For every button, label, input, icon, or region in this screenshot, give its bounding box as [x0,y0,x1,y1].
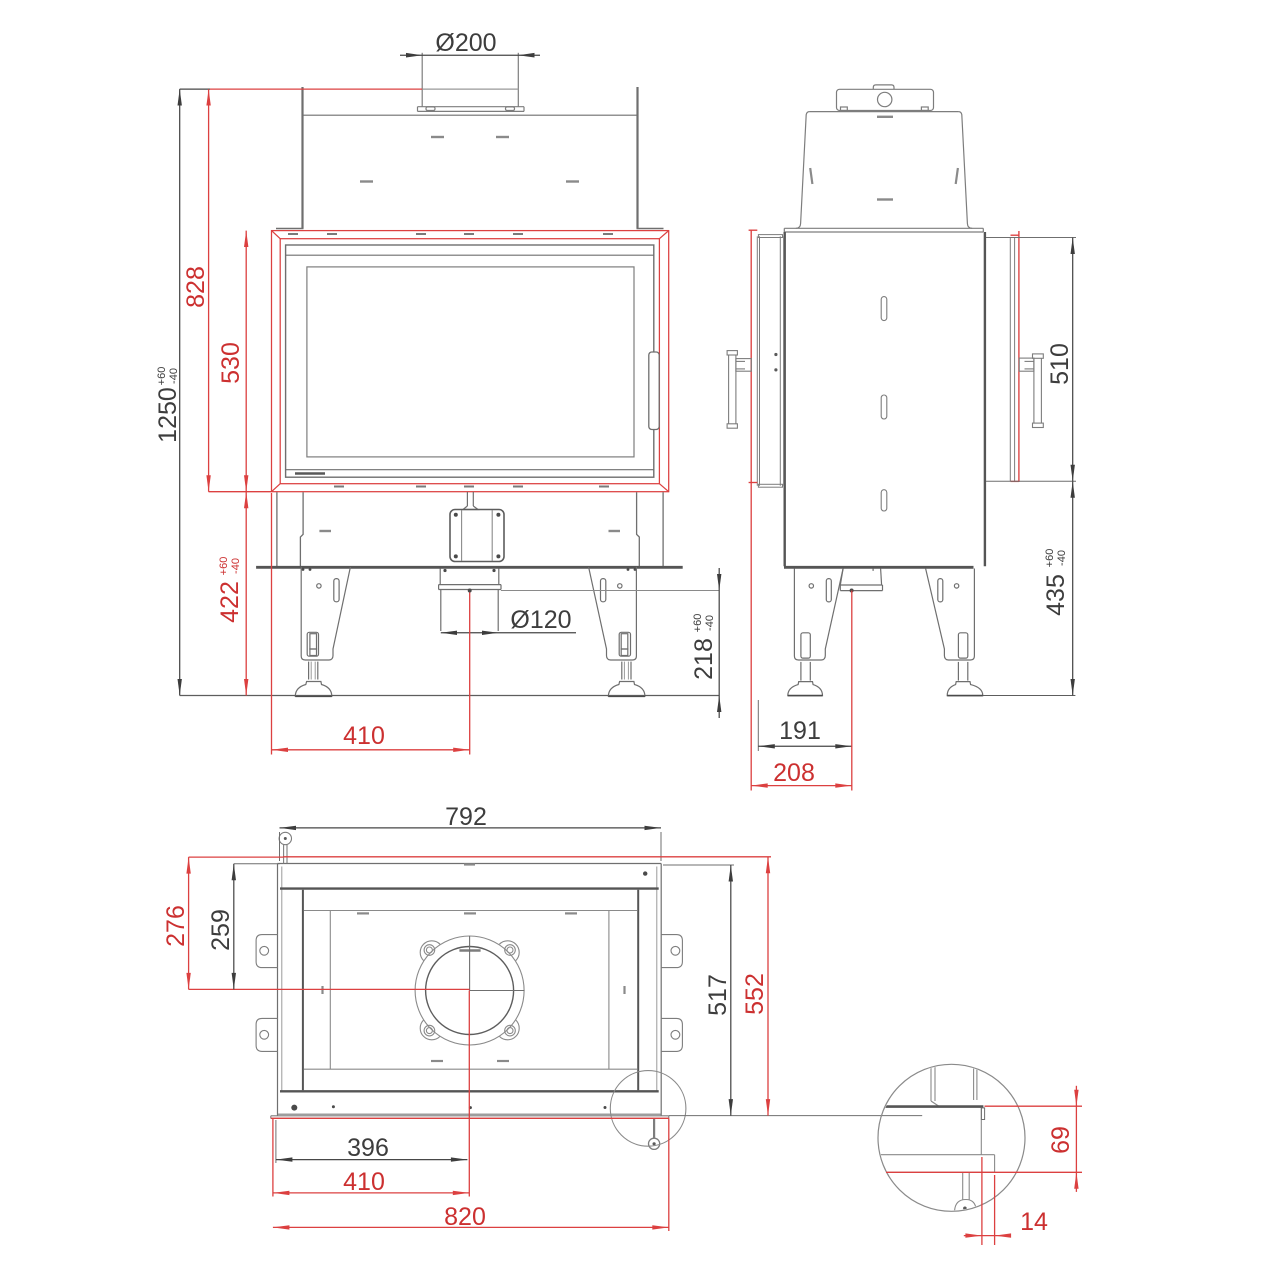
svg-text:+60: +60 [692,614,704,633]
svg-text:+60: +60 [156,367,168,386]
svg-text:208: 208 [773,759,815,787]
svg-text:396: 396 [347,1134,389,1162]
svg-text:820: 820 [444,1203,486,1231]
svg-text:410: 410 [343,1168,385,1196]
svg-text:510: 510 [1046,343,1074,385]
svg-text:552: 552 [741,973,769,1015]
svg-text:69: 69 [1047,1126,1075,1154]
svg-text:828: 828 [182,266,210,308]
svg-text:259: 259 [207,909,235,951]
svg-text:Ø120: Ø120 [510,606,571,634]
svg-text:-40: -40 [1056,550,1068,566]
svg-text:191: 191 [779,717,821,745]
svg-text:792: 792 [445,803,487,831]
svg-text:435: 435 [1042,574,1070,616]
svg-text:+60: +60 [218,557,230,576]
svg-text:218: 218 [690,638,718,680]
svg-text:-40: -40 [168,368,180,384]
svg-text:Ø200: Ø200 [435,29,496,57]
svg-text:14: 14 [1020,1208,1048,1236]
svg-text:-40: -40 [230,558,242,574]
svg-text:530: 530 [217,342,245,384]
svg-text:276: 276 [162,905,190,947]
svg-text:422: 422 [216,581,244,623]
svg-text:-40: -40 [704,615,716,631]
svg-text:1250: 1250 [154,387,182,443]
svg-text:+60: +60 [1044,549,1056,568]
svg-text:410: 410 [343,722,385,750]
svg-text:517: 517 [704,974,732,1016]
